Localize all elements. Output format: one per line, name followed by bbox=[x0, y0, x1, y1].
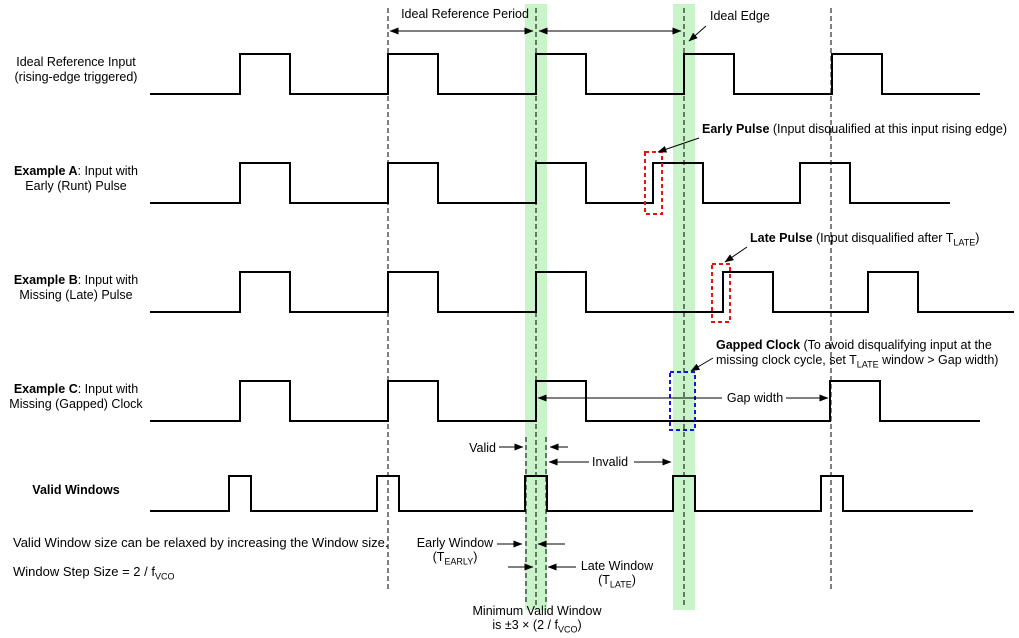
row-label-example-b: Example B: Input with Missing (Late) Pul… bbox=[0, 273, 152, 302]
early-pulse-callout: Early Pulse (Input disqualified at this … bbox=[702, 122, 1007, 137]
waveform-example-b-late-pulse bbox=[150, 272, 1014, 312]
late-pulse-desc-pre: (Input disqualified after T bbox=[813, 231, 954, 245]
late-window-post: ) bbox=[632, 573, 636, 587]
gapped-clock-line1: (To avoid disqualifying input at the bbox=[800, 338, 992, 352]
waveform-example-c-gapped bbox=[150, 381, 980, 421]
min-window-line1: Minimum Valid Window bbox=[473, 604, 602, 618]
ideal-edge-label: Ideal Edge bbox=[710, 9, 770, 24]
min-window-sub: VCO bbox=[558, 625, 578, 635]
row5-bold: Valid Windows bbox=[32, 483, 119, 497]
early-window-sub: EARLY bbox=[444, 557, 473, 567]
late-window-line1: Late Window bbox=[581, 559, 653, 573]
row4-bold: Example C bbox=[14, 382, 78, 396]
gap-width-label: Gap width bbox=[724, 391, 786, 406]
early-pulse-desc: (Input disqualified at this input rising… bbox=[769, 122, 1007, 136]
early-window-label: Early Window (TEARLY) bbox=[405, 536, 505, 564]
row2-rest: : Input with bbox=[78, 164, 138, 178]
late-pulse-sub: LATE bbox=[953, 238, 975, 248]
early-window-line1: Early Window bbox=[417, 536, 493, 550]
row-label-example-a: Example A: Input with Early (Runt) Pulse bbox=[0, 164, 152, 193]
row3-line2: Missing (Late) Pulse bbox=[19, 288, 132, 302]
row4-rest: : Input with bbox=[78, 382, 138, 396]
ideal-reference-period-label: Ideal Reference Period bbox=[400, 7, 530, 22]
window-step-size-note: Window Step Size = 2 / fVCO bbox=[13, 564, 175, 579]
minimum-valid-window-label: Minimum Valid Window is ±3 × (2 / fVCO) bbox=[457, 604, 617, 632]
late-window-pre: (T bbox=[598, 573, 610, 587]
row3-bold: Example B bbox=[14, 273, 78, 287]
gapped-clock-title: Gapped Clock bbox=[716, 338, 800, 352]
early-pulse-title: Early Pulse bbox=[702, 122, 769, 136]
min-window-pre: is ±3 × (2 / f bbox=[492, 618, 558, 632]
clock-validation-timing-diagram: Ideal Reference Period Ideal Edge Ideal … bbox=[0, 0, 1019, 638]
row1-line2: (rising-edge triggered) bbox=[15, 70, 138, 84]
late-window-sub: LATE bbox=[610, 580, 632, 590]
late-pulse-callout: Late Pulse (Input disqualified after TLA… bbox=[750, 231, 979, 246]
gapped-clock-callout: Gapped Clock (To avoid disqualifying inp… bbox=[716, 338, 998, 367]
gapped-clock-sub: LATE bbox=[857, 359, 879, 369]
row-label-valid-windows: Valid Windows bbox=[0, 483, 152, 498]
annotation-arrow-5 bbox=[725, 247, 747, 262]
late-pulse-title: Late Pulse bbox=[750, 231, 813, 245]
row1-line1: Ideal Reference Input bbox=[16, 55, 136, 69]
early-window-pre: (T bbox=[433, 550, 445, 564]
valid-label: Valid bbox=[430, 441, 496, 456]
window-step-sub: VCO bbox=[155, 572, 175, 582]
early-window-post: ) bbox=[473, 550, 477, 564]
gapped-clock-line2-post: window > Gap width) bbox=[879, 353, 999, 367]
row4-line2: Missing (Gapped) Clock bbox=[9, 397, 142, 411]
waveform-valid-windows bbox=[150, 476, 973, 511]
waveform-ideal-reference-input bbox=[150, 54, 980, 94]
row2-line2: Early (Runt) Pulse bbox=[25, 179, 126, 193]
row-label-example-c: Example C: Input with Missing (Gapped) C… bbox=[0, 382, 152, 411]
window-step-pre: Window Step Size = 2 / f bbox=[13, 564, 155, 579]
gapped-clock-line2-pre: missing clock cycle, set T bbox=[716, 353, 857, 367]
invalid-label: Invalid bbox=[592, 455, 628, 470]
row2-bold: Example A bbox=[14, 164, 77, 178]
row3-rest: : Input with bbox=[78, 273, 138, 287]
row-label-ideal-reference-input: Ideal Reference Input (rising-edge trigg… bbox=[0, 55, 152, 84]
late-window-label: Late Window (TLATE) bbox=[567, 559, 667, 587]
relax-window-note: Valid Window size can be relaxed by incr… bbox=[13, 535, 389, 550]
min-window-post: ) bbox=[577, 618, 581, 632]
late-pulse-desc-post: ) bbox=[975, 231, 979, 245]
waveform-example-a-early-runt bbox=[150, 163, 950, 203]
